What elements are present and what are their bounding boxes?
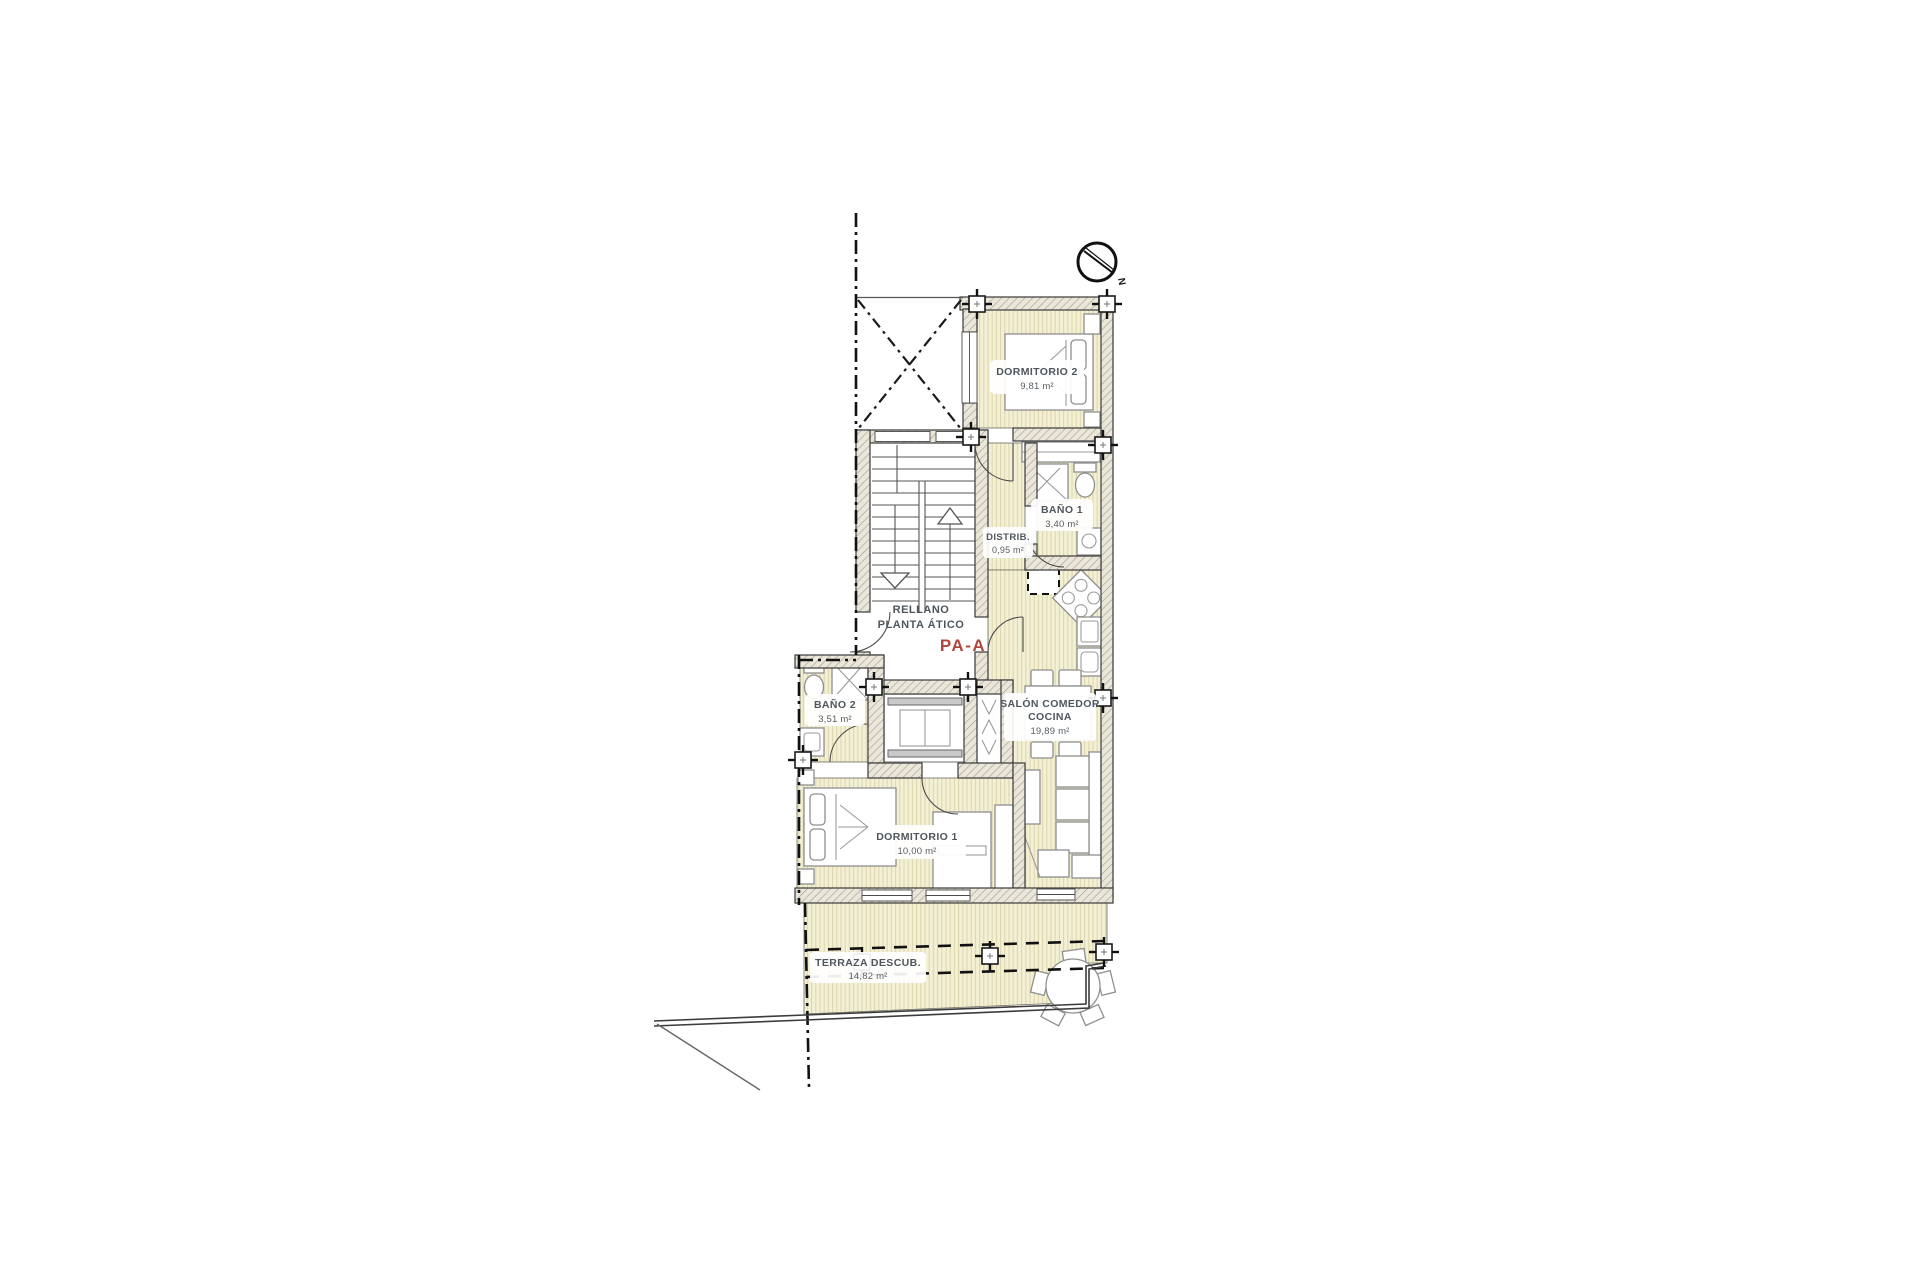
svg-text:SALÓN COMEDOR: SALÓN COMEDOR: [1000, 697, 1100, 710]
svg-text:DISTRIB.: DISTRIB.: [986, 532, 1030, 543]
bench-dorm2: [1084, 412, 1100, 427]
staircase: [870, 443, 975, 612]
svg-text:14,82 m²: 14,82 m²: [848, 971, 887, 982]
toilet-bano2: [804, 664, 824, 699]
nightstand-dorm1-bottom: [798, 869, 814, 884]
label-dormitorio-2: DORMITORIO 2 9,81 m²: [990, 360, 1084, 394]
svg-text:0,95 m²: 0,95 m²: [992, 545, 1024, 555]
svg-text:19,89 m²: 19,89 m²: [1030, 726, 1069, 737]
svg-text:BAÑO 1: BAÑO 1: [1041, 503, 1083, 516]
toilet-bano1: [1074, 463, 1096, 497]
sink-bano1: [1077, 528, 1101, 555]
armchair: [1038, 850, 1069, 877]
svg-text:3,40 m²: 3,40 m²: [1045, 519, 1079, 530]
svg-text:DORMITORIO 2: DORMITORIO 2: [996, 366, 1078, 378]
elevator: [884, 694, 966, 762]
north-arrow-icon: N: [1078, 243, 1127, 286]
window-dorm1-right: [926, 890, 970, 901]
svg-text:COCINA: COCINA: [1028, 711, 1072, 723]
svg-text:3,51 m²: 3,51 m²: [818, 714, 852, 725]
svg-text:TERRAZA DESCUB.: TERRAZA DESCUB.: [815, 957, 921, 969]
svg-text:PLANTA ÁTICO: PLANTA ÁTICO: [878, 618, 965, 631]
vent-shaft: [982, 700, 996, 754]
label-salon: SALÓN COMEDOR COCINA 19,89 m²: [1000, 693, 1100, 741]
fridge-kitchen: [1077, 617, 1102, 646]
svg-text:9,81 m²: 9,81 m²: [1020, 381, 1054, 392]
svg-text:10,00 m²: 10,00 m²: [897, 846, 936, 857]
void-shaft: [856, 298, 963, 430]
window-dorm2: [962, 332, 977, 403]
stair-opening-1: [875, 432, 930, 442]
svg-text:RELLANO: RELLANO: [893, 604, 950, 616]
label-dormitorio-1: DORMITORIO 1 10,00 m²: [868, 825, 966, 859]
svg-text:DORMITORIO 1: DORMITORIO 1: [876, 831, 958, 843]
floor-plan-drawing: N DORMITORIO 2 9,81 m² BAÑO 1 3,40 m² DI…: [0, 0, 1920, 1280]
north-label: N: [1115, 277, 1127, 286]
label-bano-2: BAÑO 2 3,51 m²: [805, 694, 865, 726]
unit-code: PA-A: [940, 636, 986, 655]
lower-terrace-edge: [657, 1024, 760, 1090]
slider-salon-terrace: [1037, 889, 1075, 900]
label-distrib: DISTRIB. 0,95 m²: [983, 527, 1033, 558]
nightstand-dorm1-top: [798, 770, 814, 785]
label-bano-1: BAÑO 1 3,40 m²: [1031, 499, 1093, 531]
svg-text:BAÑO 2: BAÑO 2: [814, 698, 856, 711]
window-dorm1-left: [862, 890, 912, 901]
nightstand-dorm2: [1084, 314, 1100, 334]
floor-plan-page: N DORMITORIO 2 9,81 m² BAÑO 1 3,40 m² DI…: [0, 0, 1920, 1280]
label-terrace: TERRAZA DESCUB. 14,82 m²: [810, 952, 926, 983]
